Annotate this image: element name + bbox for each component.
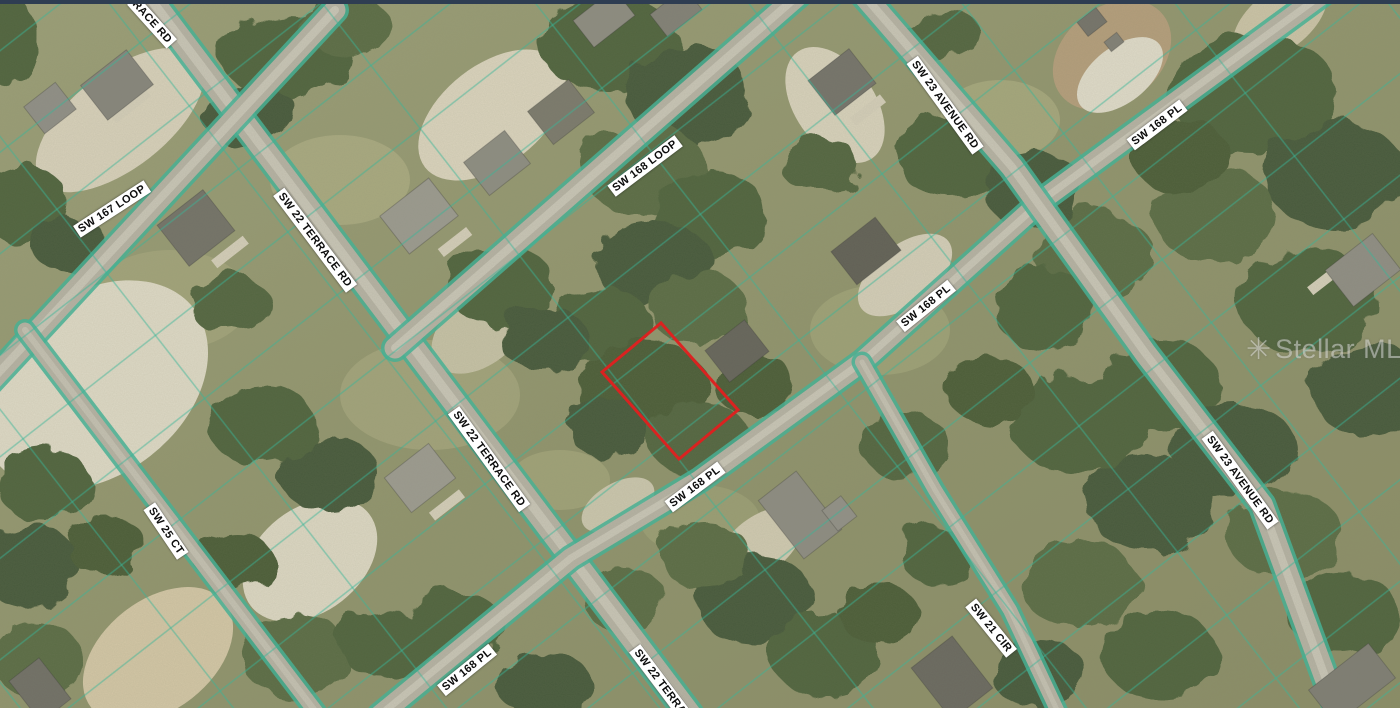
parcel-grid-layer	[0, 0, 1400, 708]
top-edge-bar	[0, 0, 1400, 4]
aerial-map[interactable]: RACE RD SW 167 LOOP SW 22 TERRACE RD SW …	[0, 0, 1400, 708]
stellar-mls-watermark-text: Stellar MLS	[1275, 334, 1400, 365]
stellar-mls-watermark: ✳ Stellar MLS	[1246, 334, 1400, 365]
map-graphics	[0, 0, 1400, 708]
stellar-mls-logo-icon: ✳	[1246, 335, 1271, 365]
